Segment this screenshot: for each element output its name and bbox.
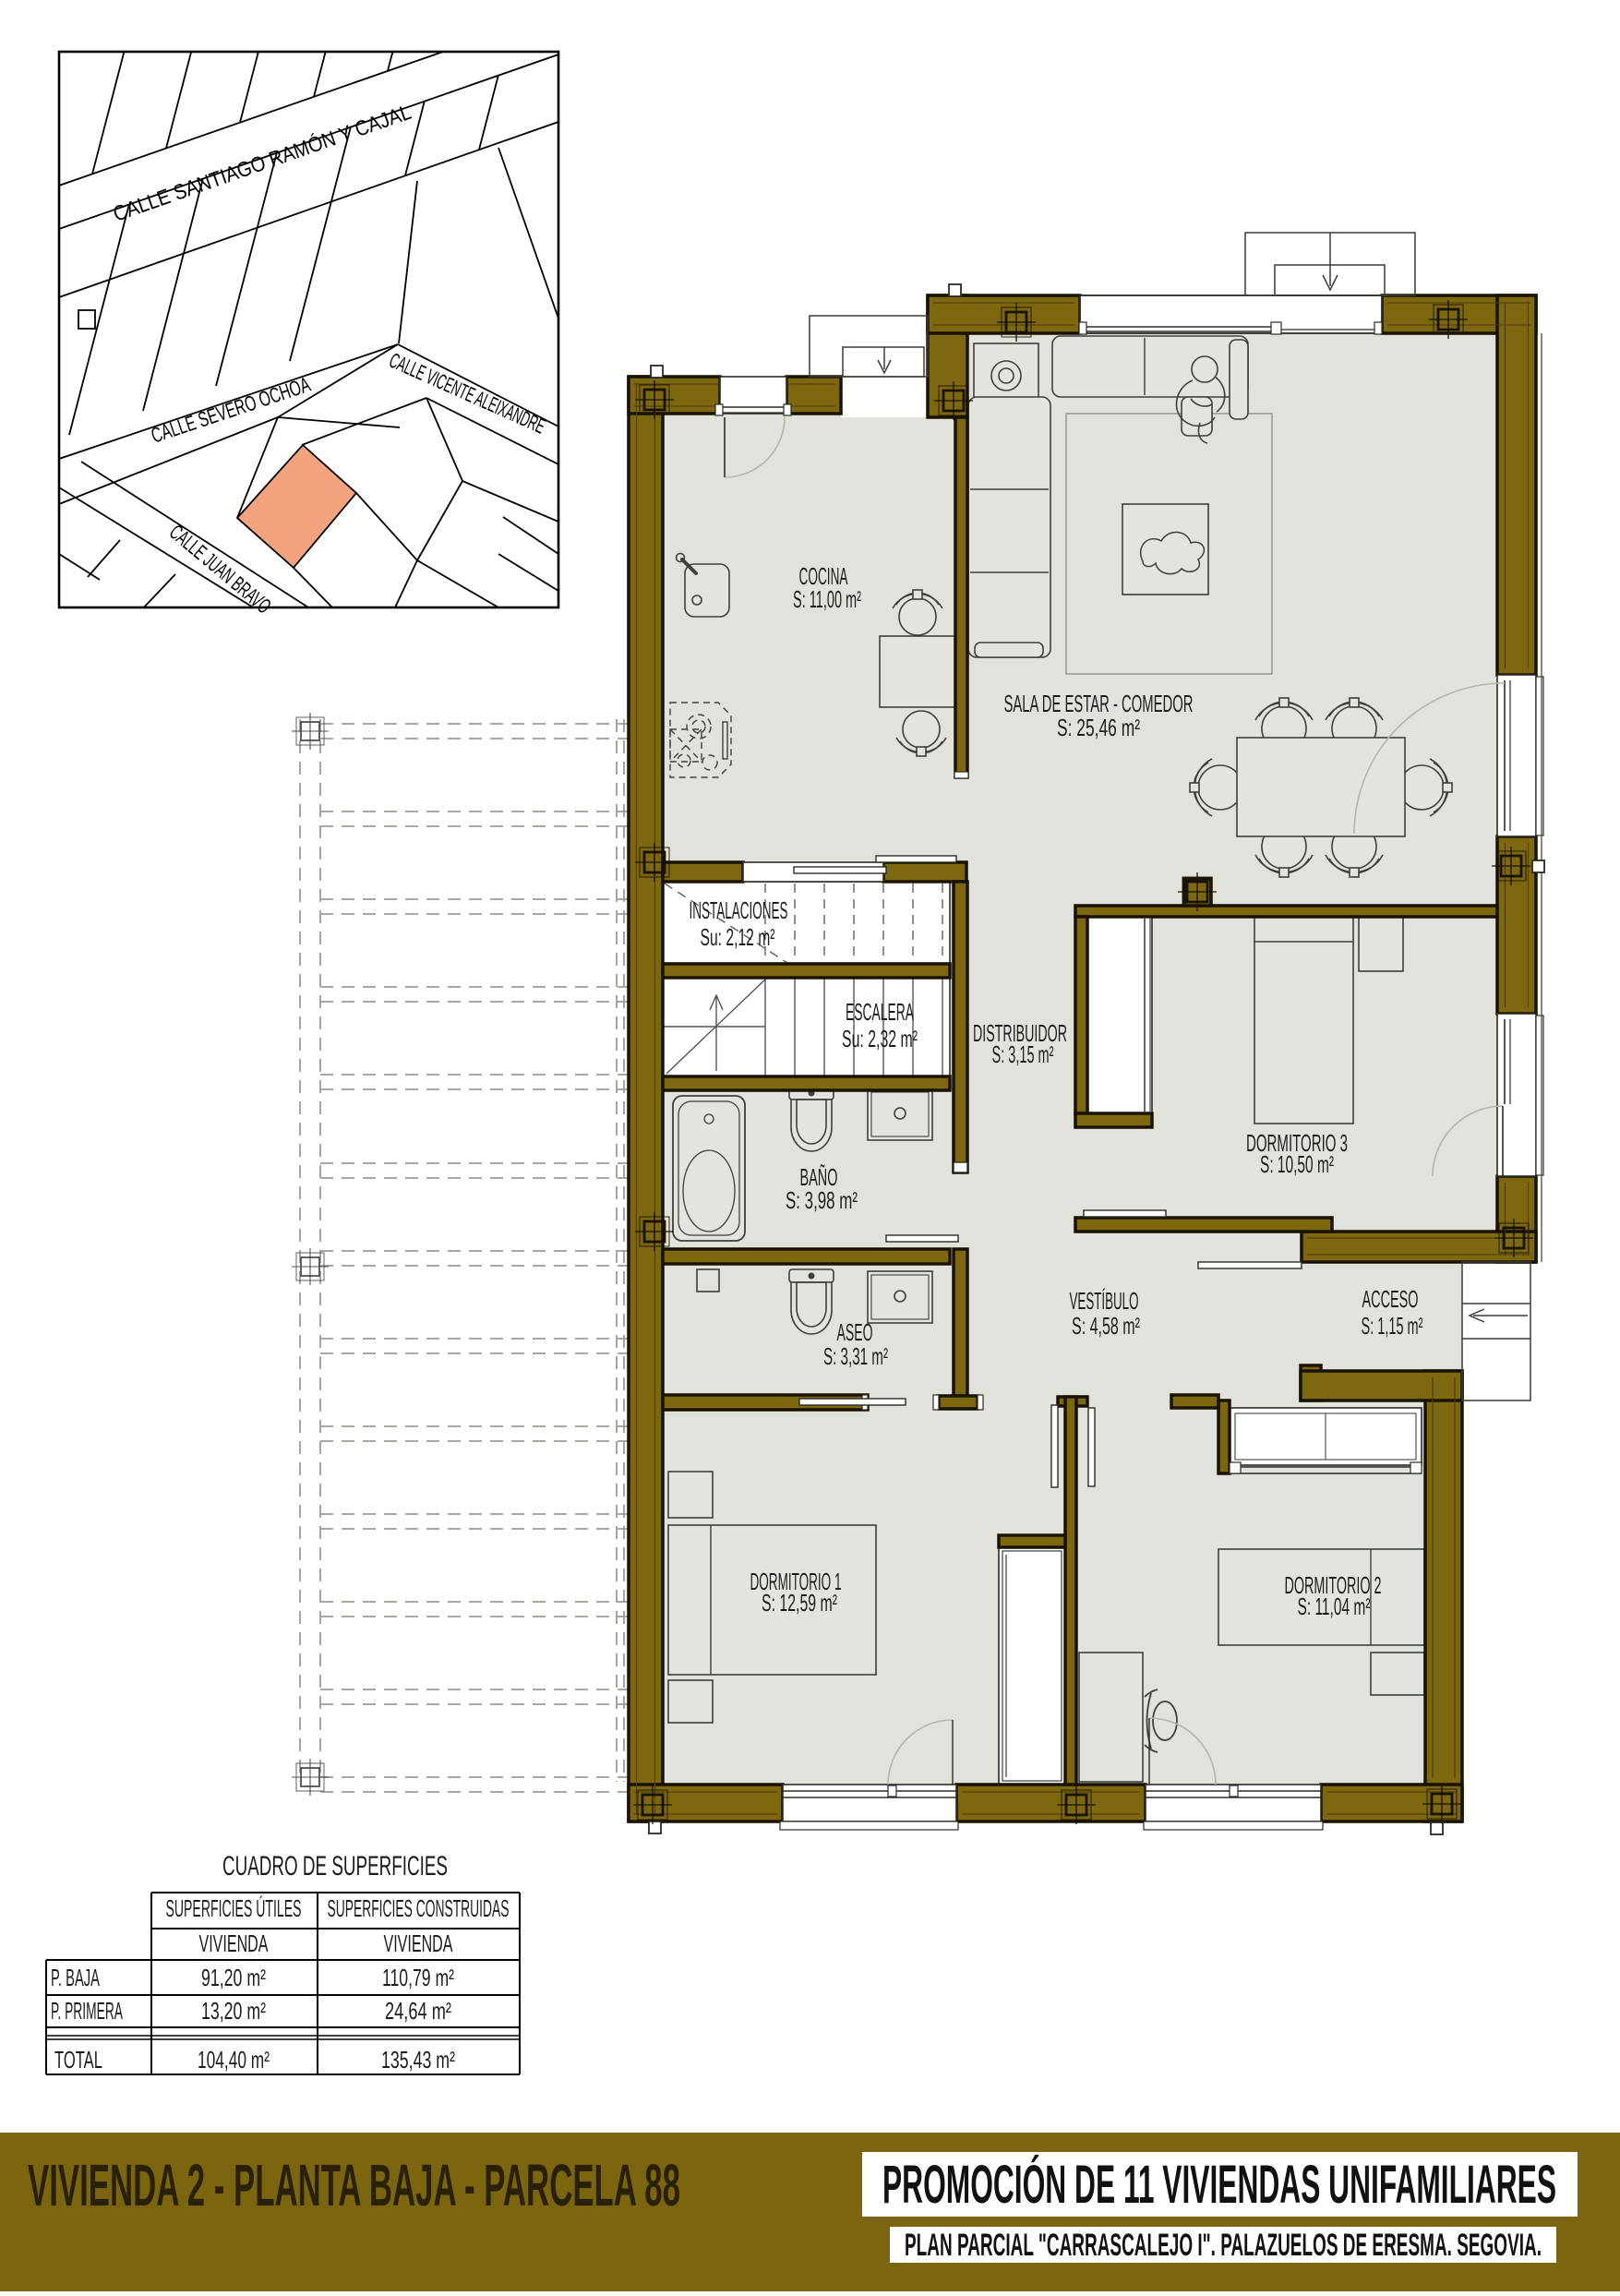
svg-text:INSTALACIONES: INSTALACIONES [690, 896, 788, 924]
svg-text:SUPERFICIES ÚTILES: SUPERFICIES ÚTILES [166, 1894, 302, 1922]
svg-text:ESCALERA: ESCALERA [846, 998, 914, 1026]
svg-text:VIVIENDA: VIVIENDA [199, 1929, 269, 1957]
svg-text:S: 11,04 m²: S: 11,04 m² [1298, 1593, 1371, 1620]
svg-text:P. PRIMERA: P. PRIMERA [51, 1997, 123, 2025]
svg-text:S: 10,50 m²: S: 10,50 m² [1260, 1150, 1334, 1178]
svg-text:S: 3,15 m²: S: 3,15 m² [992, 1040, 1054, 1068]
svg-text:S: 4,58 m²: S: 4,58 m² [1072, 1312, 1140, 1340]
svg-text:SUPERFICIES CONSTRUIDAS: SUPERFICIES CONSTRUIDAS [328, 1894, 510, 1922]
svg-text:104,40 m²: 104,40 m² [198, 2046, 270, 2074]
svg-text:Su: 2,12 m²: Su: 2,12 m² [701, 923, 775, 951]
svg-text:CUADRO DE SUPERFICIES: CUADRO DE SUPERFICIES [222, 1851, 448, 1881]
svg-text:S: 25,46 m²: S: 25,46 m² [1057, 714, 1140, 741]
svg-text:S: 12,59 m²: S: 12,59 m² [762, 1589, 837, 1617]
svg-text:91,20 m²: 91,20 m² [201, 1964, 266, 1991]
svg-text:S: 3,31 m²: S: 3,31 m² [823, 1342, 888, 1370]
svg-text:ACCESO: ACCESO [1362, 1285, 1419, 1313]
svg-text:VIVIENDA 2 - PLANTA BAJA - PAR: VIVIENDA 2 - PLANTA BAJA - PARCELA 88 [28, 2152, 680, 2218]
svg-text:TOTAL: TOTAL [54, 2046, 102, 2074]
svg-text:P. BAJA: P. BAJA [51, 1964, 100, 1991]
svg-text:Su: 2,32 m²: Su: 2,32 m² [842, 1025, 918, 1052]
svg-text:110,79 m²: 110,79 m² [382, 1964, 454, 1991]
svg-text:PROMOCIÓN DE 11 VIVIENDAS UNIF: PROMOCIÓN DE 11 VIVIENDAS UNIFAMILIARES [882, 2155, 1556, 2215]
svg-text:S: 1,15 m²: S: 1,15 m² [1362, 1312, 1423, 1340]
svg-text:PLAN PARCIAL "CARRASCALEJO I".: PLAN PARCIAL "CARRASCALEJO I". PALAZUELO… [905, 2228, 1542, 2263]
svg-text:135,43 m²: 135,43 m² [381, 2046, 455, 2074]
svg-text:S: 3,98 m²: S: 3,98 m² [786, 1186, 858, 1214]
svg-text:VESTÍBULO: VESTÍBULO [1070, 1287, 1139, 1315]
svg-text:S: 11,00 m²: S: 11,00 m² [793, 585, 861, 613]
svg-text:VIVIENDA: VIVIENDA [384, 1929, 453, 1957]
svg-text:24,64 m²: 24,64 m² [385, 1997, 451, 2025]
svg-text:13,20 m²: 13,20 m² [201, 1997, 266, 2025]
